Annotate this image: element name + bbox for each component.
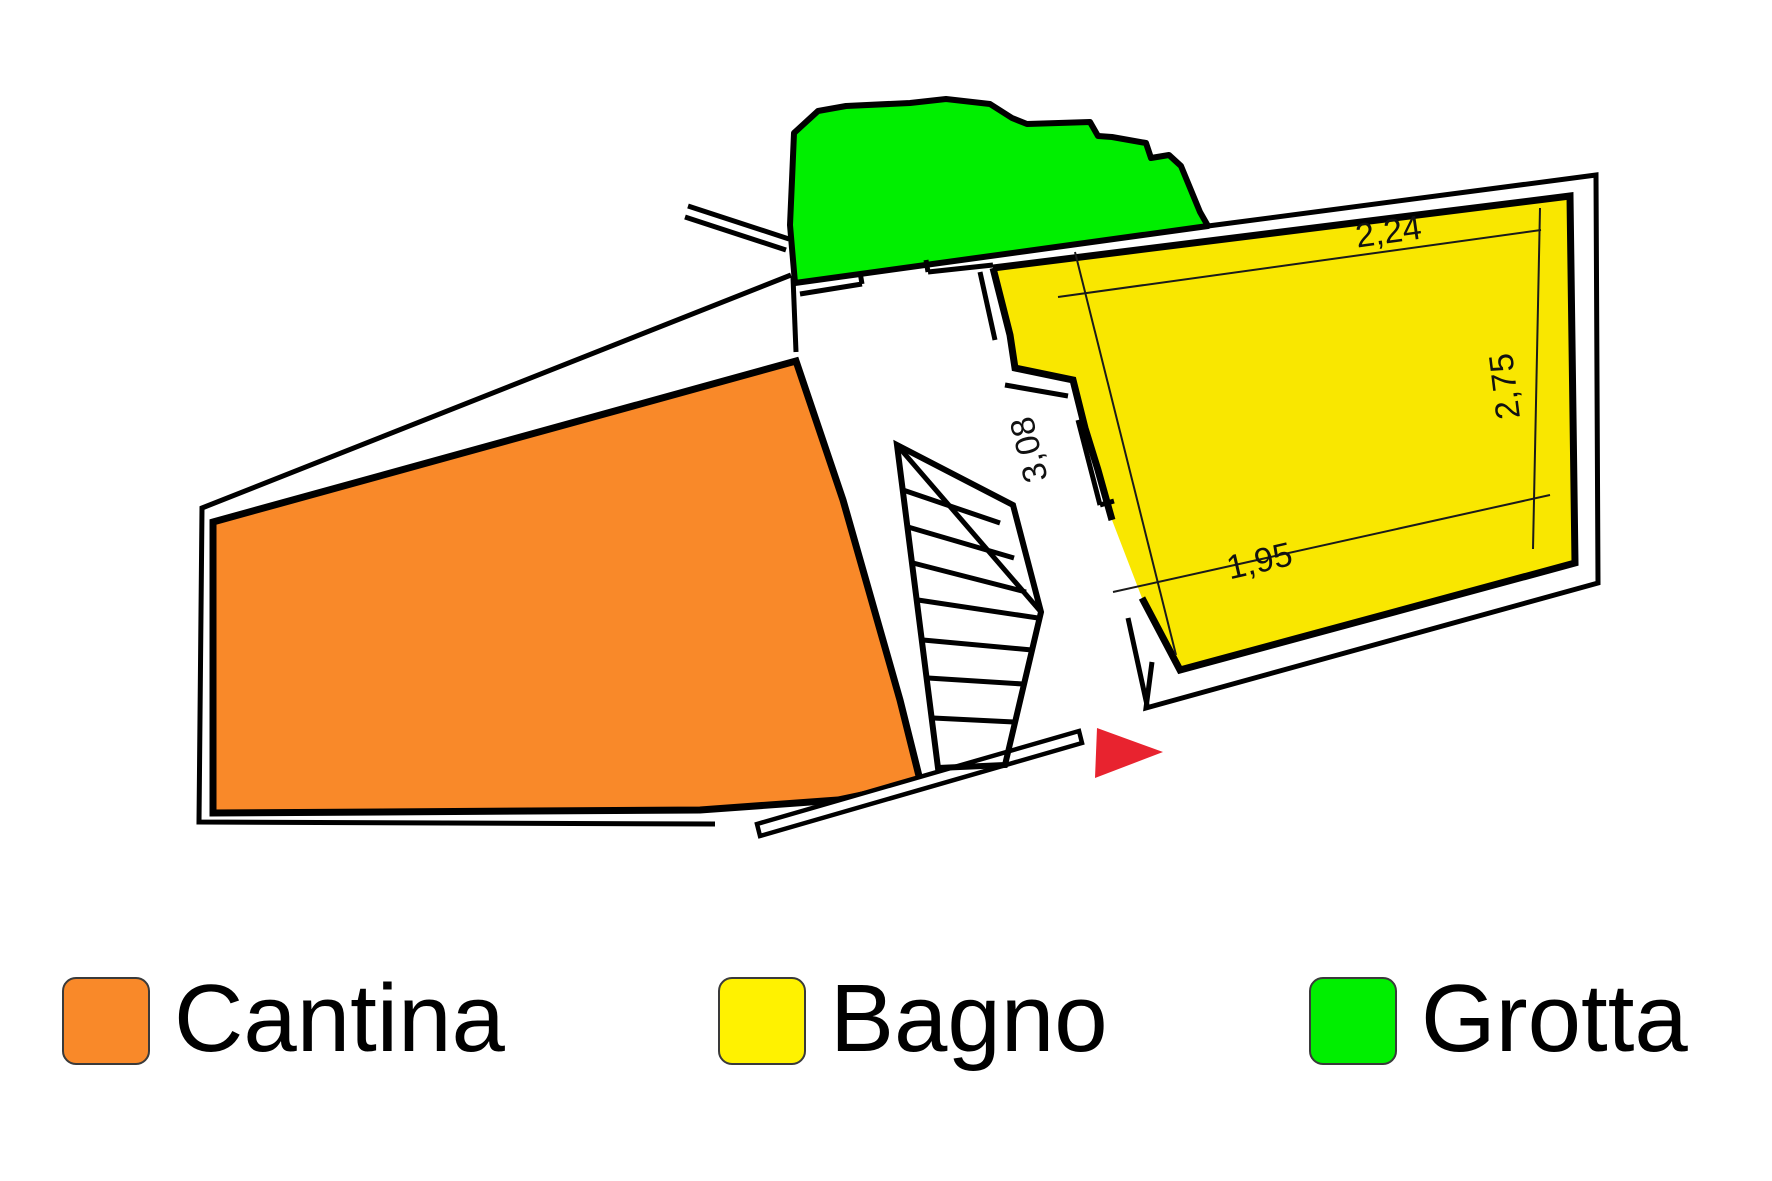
floorplan-page: { "plan": { "dimensions": [ {"id": "top"… bbox=[0, 0, 1772, 1181]
floorplan-canvas: 2,24 2,75 3,08 1,95 bbox=[0, 0, 1772, 1181]
room-cantina bbox=[213, 361, 920, 813]
wall-fragment-left-of-grotta bbox=[685, 206, 789, 250]
staircase bbox=[897, 445, 1041, 768]
wall-jog-corridor-left bbox=[793, 277, 796, 352]
dimension-label-left: 3,08 bbox=[1003, 413, 1056, 486]
entrance-arrow-icon bbox=[1095, 728, 1163, 778]
dimension-label-right: 2,75 bbox=[1482, 351, 1528, 421]
